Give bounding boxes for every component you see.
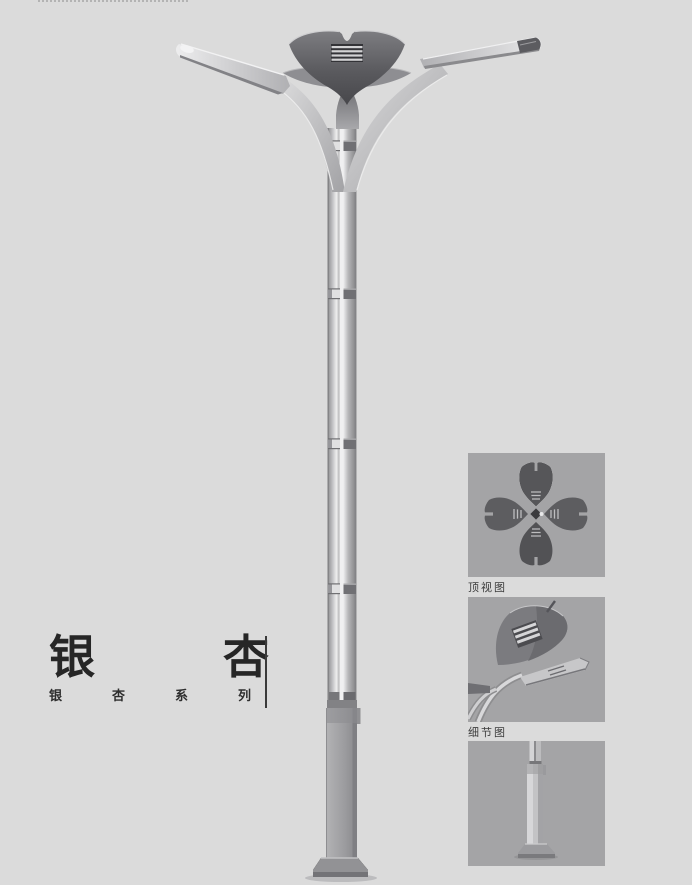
lamp-base-image — [468, 741, 605, 866]
product-series: 银杏系列 — [49, 688, 301, 704]
lamp-top-view-image — [468, 453, 605, 577]
product-title: 银杏 — [49, 634, 397, 680]
lamp-pole — [328, 128, 357, 702]
lamp-head-grille — [331, 44, 363, 62]
thumbnail-detail-view: 细节图 — [468, 597, 605, 739]
thumbnail-base-view — [468, 741, 605, 866]
lamp-detail-image — [468, 597, 605, 722]
thumbnail-caption-top-view: 顶视图 — [468, 582, 605, 594]
catalog-page: 银杏 银杏系列 — [0, 0, 692, 885]
lamp-fixture-right — [420, 37, 541, 69]
lamp-base — [305, 692, 377, 882]
lamp-fixture-left — [176, 44, 290, 95]
thumbnail-top-view: 顶视图 — [468, 453, 605, 594]
thumbnail-caption-detail-view: 细节图 — [468, 727, 605, 739]
title-divider — [265, 636, 267, 708]
